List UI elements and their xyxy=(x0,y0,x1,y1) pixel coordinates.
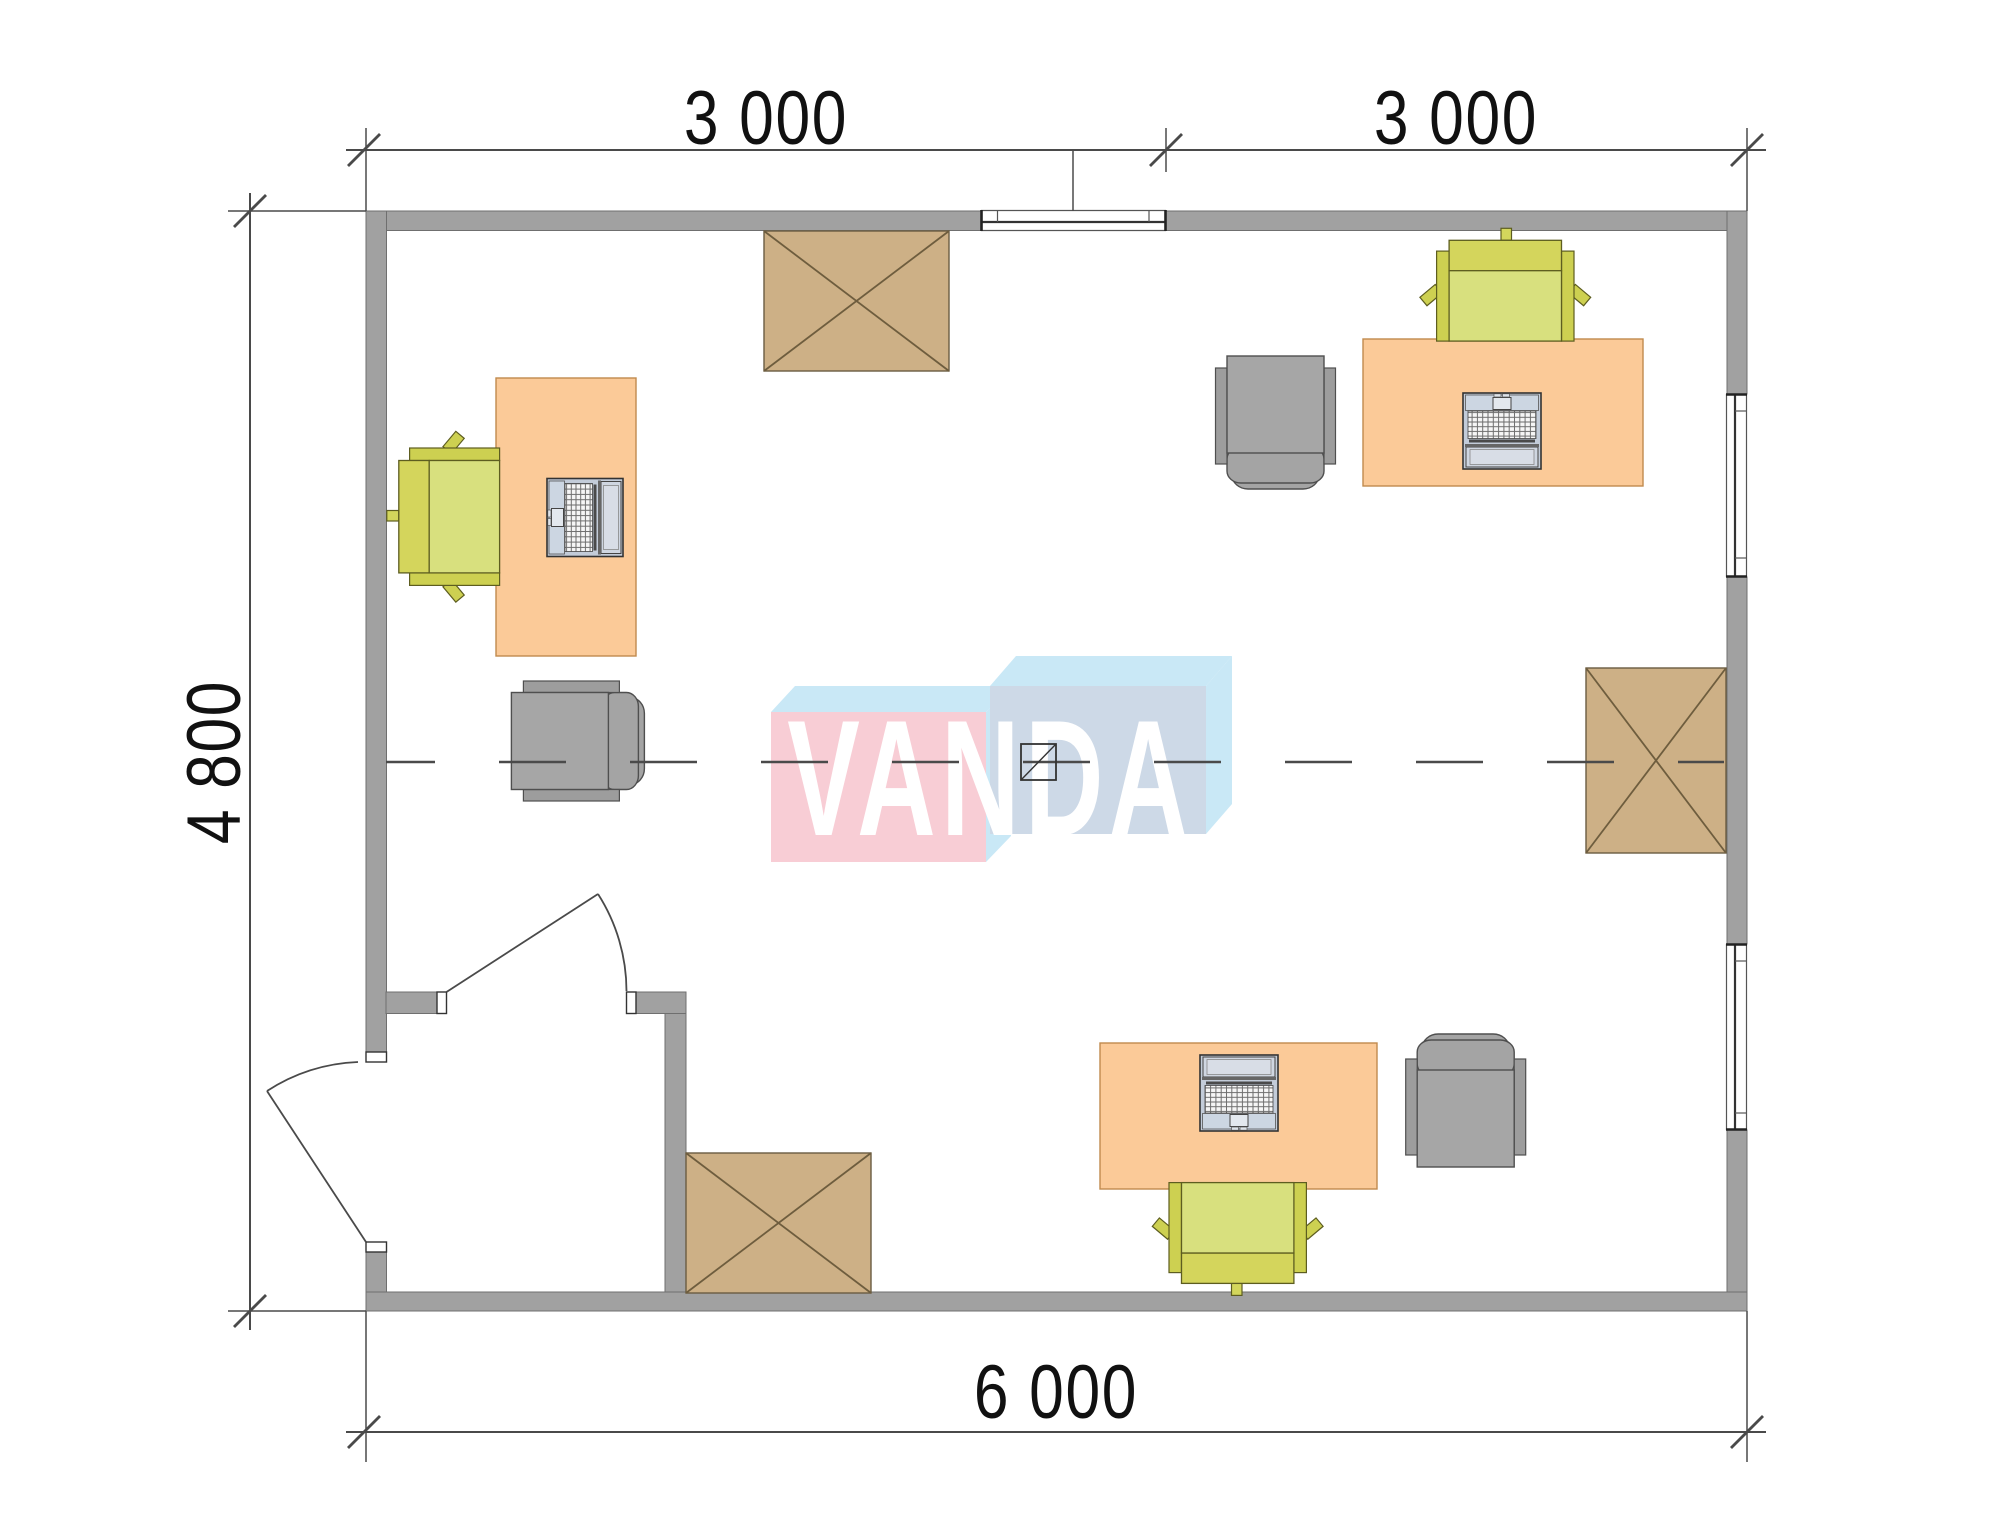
svg-text:3 000: 3 000 xyxy=(1374,75,1538,160)
svg-text:3 000: 3 000 xyxy=(684,75,848,160)
svg-text:VANDA: VANDA xyxy=(787,685,1192,870)
svg-text:6 000: 6 000 xyxy=(974,1349,1138,1434)
svg-text:4 800: 4 800 xyxy=(171,680,256,844)
